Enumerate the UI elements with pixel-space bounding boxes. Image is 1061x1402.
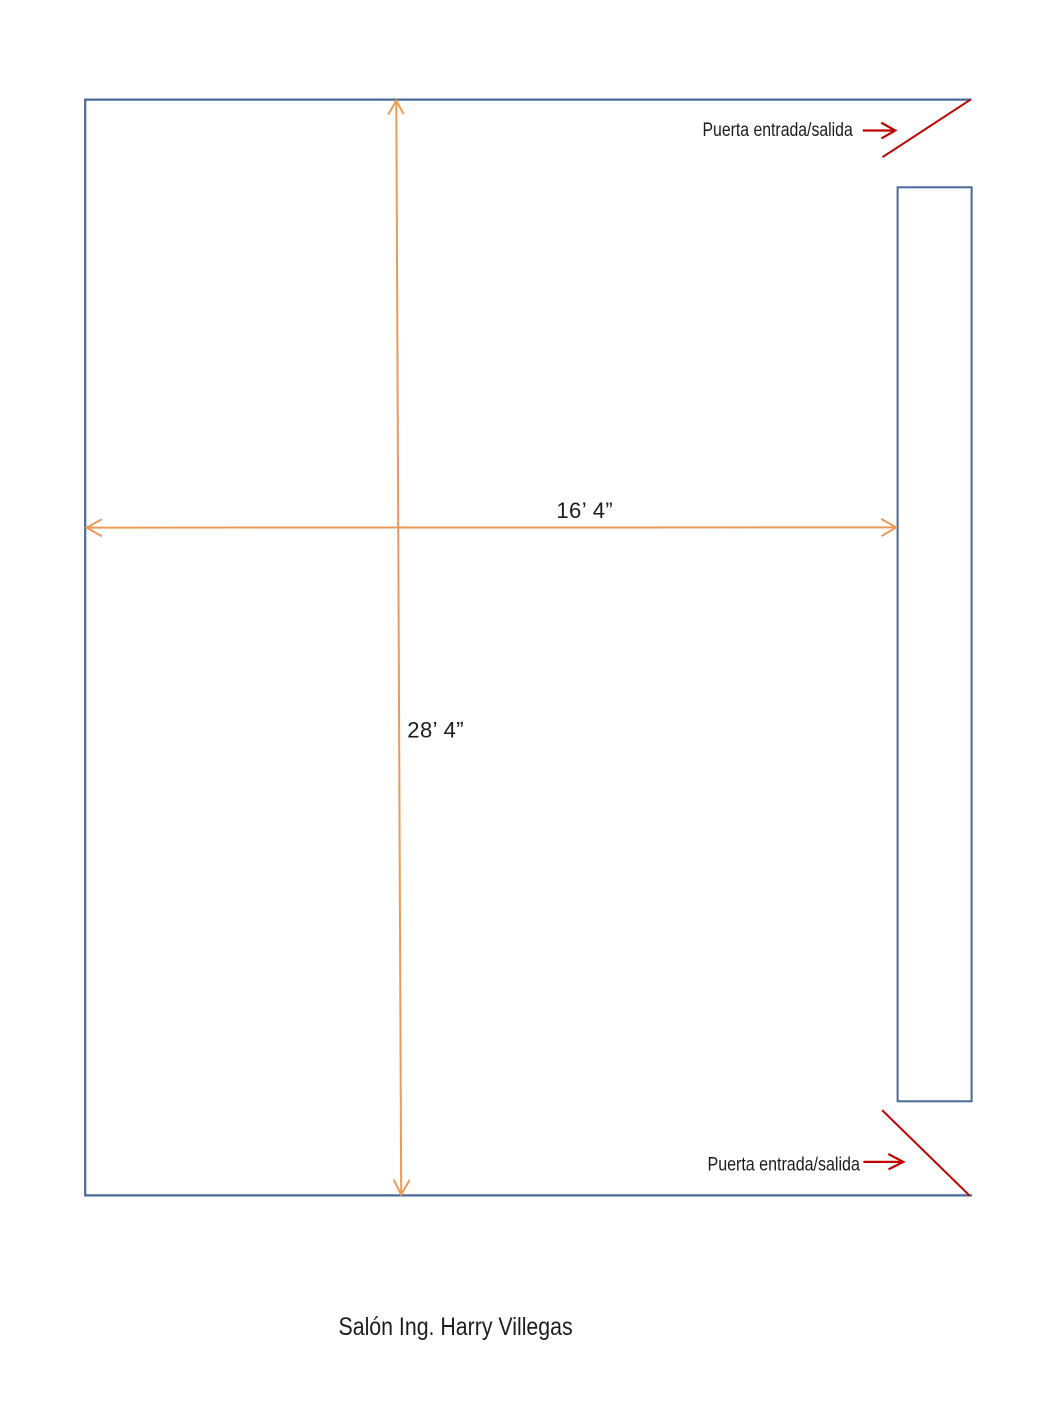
svg-text:Puerta entrada/salida: Puerta entrada/salida xyxy=(703,118,853,140)
svg-text:Puerta entrada/salida: Puerta entrada/salida xyxy=(708,1153,861,1175)
svg-text:28’ 4”: 28’ 4” xyxy=(407,717,464,742)
svg-text:Salón Ing. Harry Villegas: Salón Ing. Harry Villegas xyxy=(339,1312,573,1340)
svg-text:16’ 4”: 16’ 4” xyxy=(556,498,613,523)
